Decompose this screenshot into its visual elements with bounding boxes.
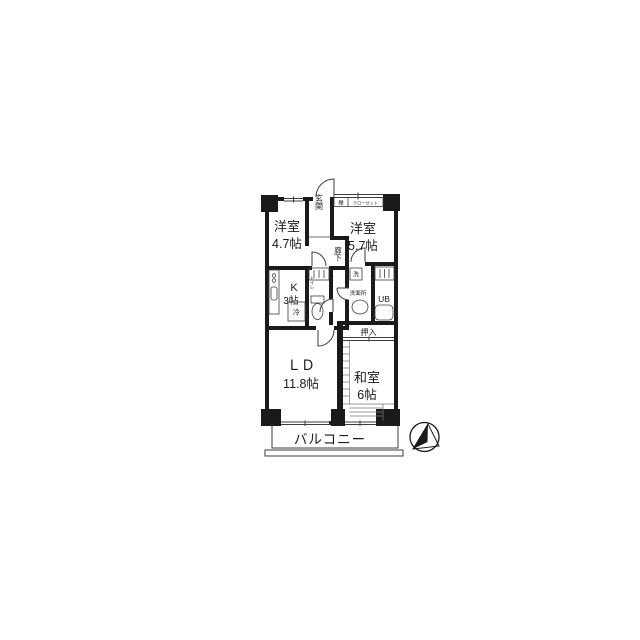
genkan-label: 玄関 xyxy=(315,193,324,211)
toilet-icon xyxy=(311,296,324,320)
window-washitsu-balcony xyxy=(345,421,376,427)
toilet-door-arc xyxy=(320,299,333,312)
window-room1-top xyxy=(284,197,303,203)
closet-label: クローゼット xyxy=(353,200,378,207)
wall-washroom-bottom xyxy=(337,321,398,325)
wall-toilet-right-upper xyxy=(329,268,333,299)
washitsu-size-label: 6帖 xyxy=(357,387,376,402)
room2-name-label: 洋室 xyxy=(350,221,376,236)
fridge-label: 冷 xyxy=(293,308,300,317)
rouka-label: 廊下 xyxy=(333,245,342,262)
wall-ld-top-left xyxy=(265,326,316,330)
balcony-label: バルコニー xyxy=(294,432,366,447)
kitchen-counter xyxy=(269,270,279,314)
pillar-bottom-left xyxy=(261,409,281,426)
wall-genkan-left xyxy=(305,197,309,246)
closet-box xyxy=(375,267,394,280)
wall-room2-bottom xyxy=(365,262,398,266)
oshiire-label: 押入 xyxy=(361,327,377,337)
room1-size-label: 4.7帖 xyxy=(272,236,302,251)
floorplan-page: 洋室 4.7帖 洋室 5.7帖 K 3帖 ＬＤ 11.8帖 和室 6帖 玄関 廊… xyxy=(0,0,640,640)
floorplan-drawing: 洋室 4.7帖 洋室 5.7帖 K 3帖 ＬＤ 11.8帖 和室 6帖 玄関 廊… xyxy=(0,0,640,640)
oshiire-sliding-door xyxy=(343,337,394,342)
washroom-door-arc xyxy=(337,288,349,300)
room2-size-label: 5.7帖 xyxy=(348,238,378,253)
wall-jog xyxy=(330,236,349,240)
ld-door-arc xyxy=(318,330,334,346)
room1-name-label: 洋室 xyxy=(274,219,300,234)
shelf-label: 棚 xyxy=(338,200,343,207)
washer-label: 洗 xyxy=(353,271,359,279)
window-room2-top xyxy=(334,193,383,200)
ub-label: UB xyxy=(378,294,390,304)
compass-icon xyxy=(410,423,439,452)
wall-corridor-right-lower xyxy=(345,300,349,330)
washitsu-name-label: 和室 xyxy=(354,370,380,385)
toilet-label: トイレ xyxy=(309,276,315,290)
kitchen-name-label: K xyxy=(290,282,298,294)
ld-name-label: ＬＤ xyxy=(287,357,315,373)
outer-wall-right xyxy=(394,197,398,425)
wall-ld-washitsu-divider xyxy=(337,325,343,421)
bathtub-icon xyxy=(375,305,393,320)
wall-room1-kitchen xyxy=(265,266,312,270)
room1-door-arc xyxy=(312,252,326,266)
window-ld-balcony xyxy=(281,421,330,427)
outer-wall-left xyxy=(265,197,269,425)
senmenjo-label: 洗面所 xyxy=(350,289,367,297)
wall-kitchen-right xyxy=(305,266,309,330)
wall-toilet-right-lower xyxy=(329,312,333,325)
wall-genkan-right xyxy=(330,197,334,240)
outer-wall-top-seg1 xyxy=(278,197,284,201)
ld-size-label: 11.8帖 xyxy=(283,376,319,391)
kitchen-size-label: 3帖 xyxy=(283,294,299,307)
sink-icon xyxy=(352,300,368,314)
pillar-top-left xyxy=(261,195,278,212)
wall-washroom-ub xyxy=(371,266,375,325)
